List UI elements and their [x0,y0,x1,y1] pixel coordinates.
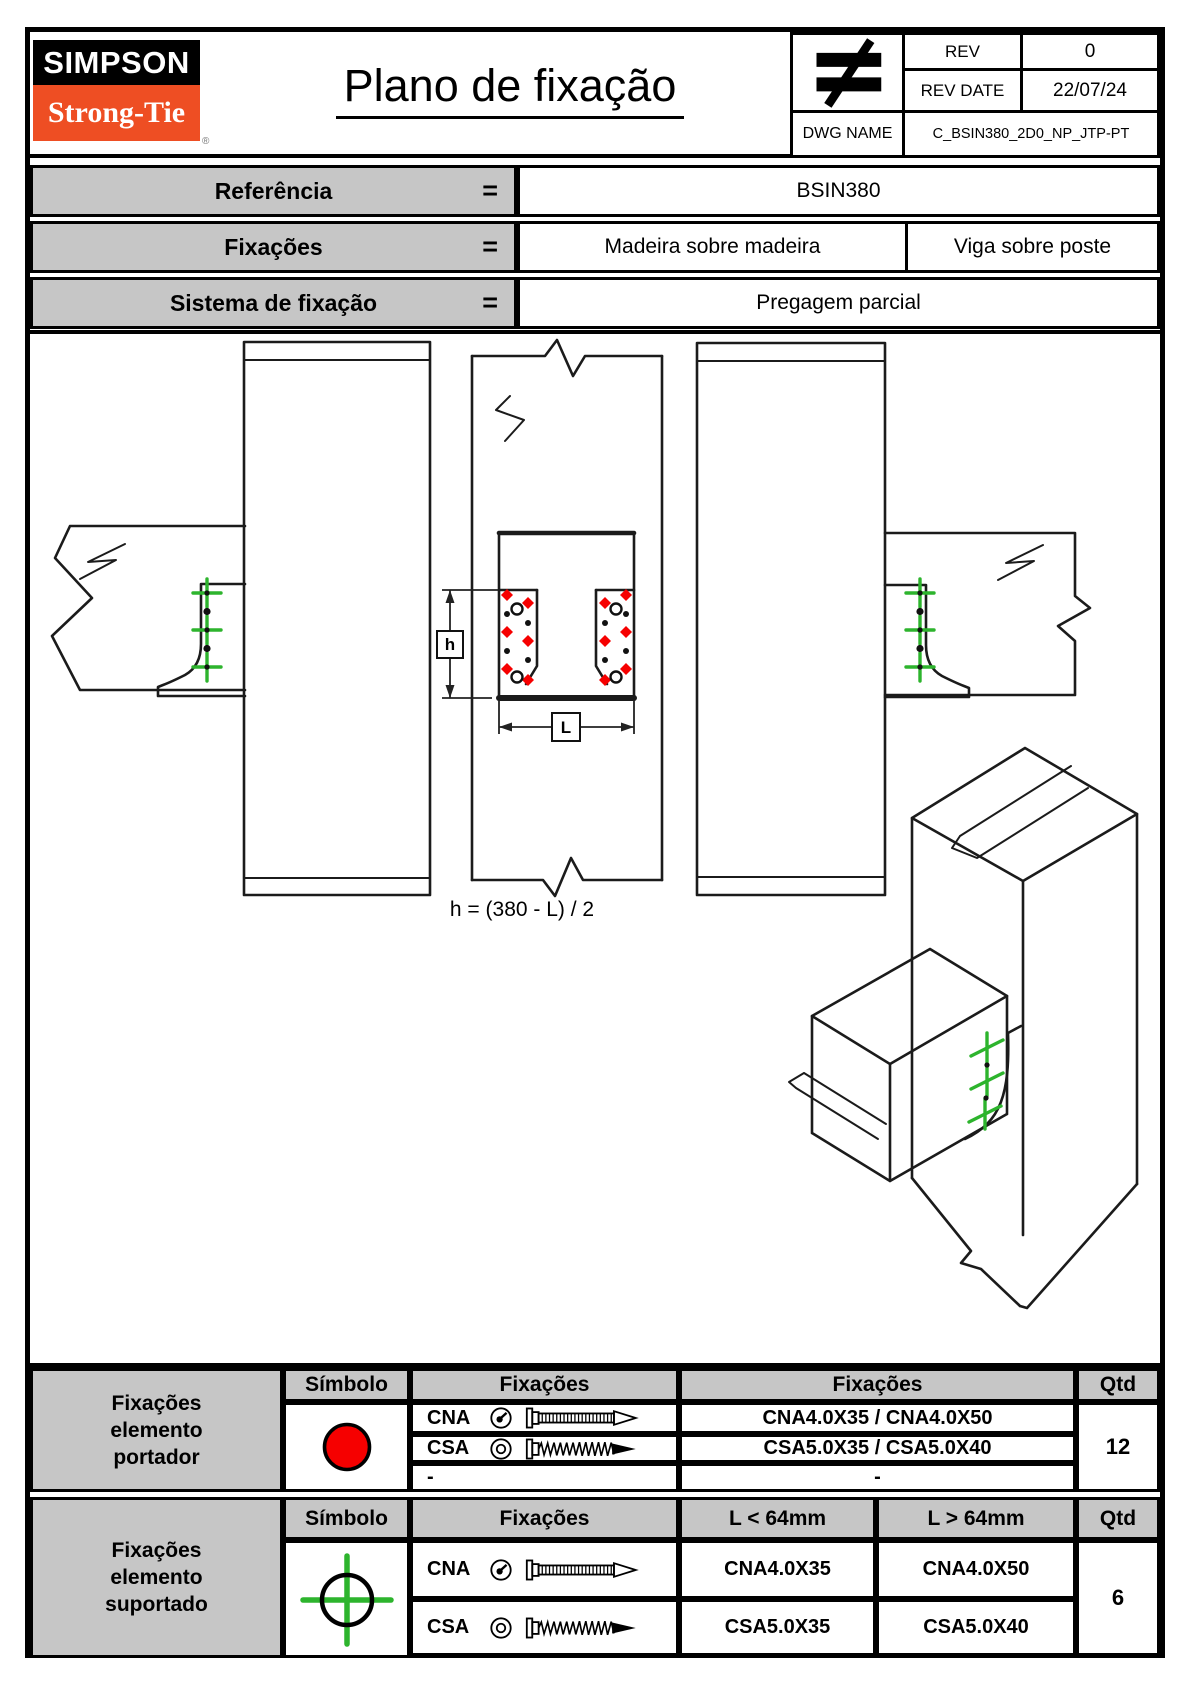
left-side-view [52,342,430,895]
suportado-header-fixacoes: Fixações [410,1497,679,1540]
suportado-csa-long: CSA5.0X40 [876,1599,1076,1656]
portador-qty-cell: 12 [1076,1402,1160,1492]
registered-mark: ® [202,136,209,147]
dim-h-label: h [445,635,455,654]
ref-row-fixacoes-value-2: Viga sobre poste [905,221,1160,273]
portador-row-dash: - [410,1463,679,1492]
screw-icon [525,1616,643,1640]
green-crosshair-symbol-icon [297,1547,397,1651]
ref-row-referencia-value: BSIN380 [517,165,1160,217]
portador-header-simbolo: Símbolo [283,1368,410,1402]
strongtie-logo-text: Strong-Tie [48,96,185,130]
rev-value-cell: 0 [1020,32,1160,71]
nail-icon [525,1406,643,1430]
portador-header-fixacoes-2: Fixações [679,1368,1076,1402]
portador-symbol-cell [283,1402,410,1492]
iso-beam-edges [812,996,1007,1181]
portador-value-dash: - [679,1463,1076,1492]
iso-beam-top [812,949,1007,1064]
right-beam [885,533,1090,695]
rev-date-label-cell: REV DATE [902,68,1023,113]
simpson-logo-text: SIMPSON [43,45,189,81]
suportado-row-csa: CSA [410,1599,679,1656]
portador-header-fixacoes-1: Fixações [410,1368,679,1402]
portador-value-cna: CNA4.0X35 / CNA4.0X50 [679,1402,1076,1434]
suportado-header-qtd: Qtd [1076,1497,1160,1540]
iso-post-edges [912,814,1137,1235]
dwg-name-value-cell: C_BSIN380_2D0_NP_JTP-PT [902,110,1160,158]
portador-row-label: Fixações elemento portador [30,1368,283,1492]
rev-date-value-cell: 22/07/24 [1020,68,1160,113]
rev-label-cell: REV [902,32,1023,71]
csa-head-icon [489,1437,513,1461]
iso-fasteners [969,1033,1003,1129]
portador-value-csa: CSA5.0X35 / CSA5.0X40 [679,1434,1076,1463]
left-post [244,342,430,895]
suportado-csa-short: CSA5.0X35 [679,1599,876,1656]
break-symbol [472,340,662,376]
hanger-side-left [158,584,245,696]
csa-head-icon [489,1616,513,1640]
suportado-header-l-short: L < 64mm [679,1497,876,1540]
suportado-header-simbolo: Símbolo [283,1497,410,1540]
carrier-fasteners-front [501,589,632,686]
technical-drawing: h L h = (380 - L) / 2 [30,334,1160,1363]
portador-header-qtd: Qtd [1076,1368,1160,1402]
red-dot-symbol-icon [319,1419,375,1475]
break-symbol [496,396,524,441]
suportado-qty-cell: 6 [1076,1540,1160,1656]
drawing-sheet: SIMPSON Strong-Tie ® Plano de fixação RE… [0,0,1190,1682]
dwg-name-label-cell: DWG NAME [790,110,905,158]
equals-sign: = [482,288,498,319]
drawing-area: h L h = (380 - L) / 2 [30,330,1160,1368]
suportado-row-label: Fixações elemento suportado [30,1497,283,1658]
ref-row-referencia-label: Referência = [30,165,517,217]
suportado-header-l-long: L > 64mm [876,1497,1076,1540]
hanger-front [499,533,634,698]
screw-icon [525,1437,643,1461]
iso-post-break [912,1178,1137,1308]
iso-post-top [912,748,1137,881]
simpson-logo: SIMPSON [33,40,200,85]
ref-row-sistema-label: Sistema de fixação = [30,277,517,329]
break-symbol [998,545,1043,580]
supported-fasteners-right [906,579,934,681]
cna-head-icon [489,1558,513,1582]
supported-fasteners-left [193,579,221,681]
portador-row-cna: CNA [410,1402,679,1434]
ref-row-fixacoes-value-1: Madeira sobre madeira [517,221,908,273]
dim-l-label: L [561,718,571,737]
equals-sign: = [482,232,498,263]
suportado-cna-long: CNA4.0X50 [876,1540,1076,1599]
equals-sign: = [482,176,498,207]
front-view: h L h = (380 - L) / 2 [437,340,662,921]
cna-head-icon [489,1406,513,1430]
height-formula: h = (380 - L) / 2 [450,898,594,921]
nail-icon [525,1558,643,1582]
ref-row-sistema-value: Pregagem parcial [517,277,1160,329]
suportado-cna-short: CNA4.0X35 [679,1540,876,1599]
iso-beam-break [789,1073,886,1139]
ref-row-fixacoes-label: Fixações = [30,221,517,273]
page-title: Plano de fixação [255,60,765,124]
right-side-view [697,343,1090,895]
break-symbol [472,858,662,896]
isometric-view [789,748,1137,1308]
break-symbol [80,544,125,579]
dimension-L: L [499,700,634,741]
not-equal-icon [802,38,894,108]
portador-row-csa: CSA [410,1434,679,1463]
strongtie-logo: Strong-Tie [33,85,200,141]
dimension-h: h [437,590,498,698]
hanger-side-right [885,585,969,697]
suportado-row-cna: CNA [410,1540,679,1599]
logo-mark-cell [790,32,905,113]
right-post [697,343,885,895]
suportado-symbol-cell [283,1540,410,1658]
